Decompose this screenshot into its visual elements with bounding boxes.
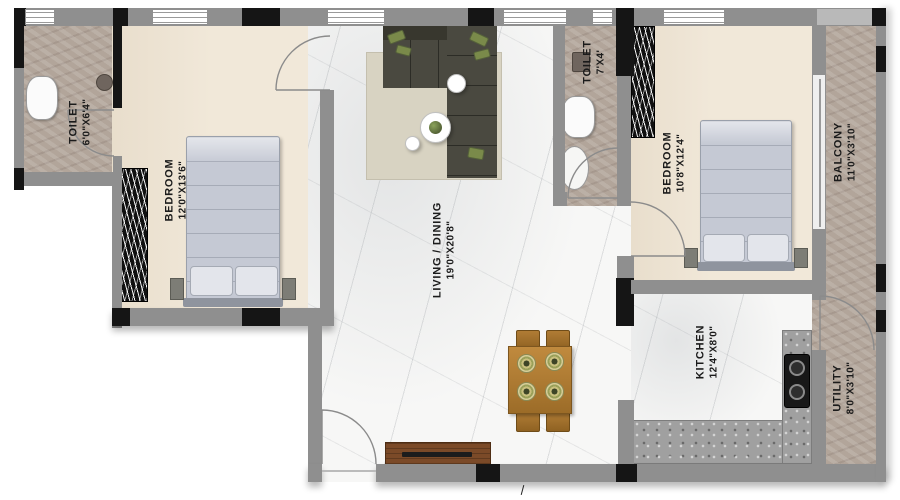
bedside-table	[684, 248, 698, 268]
wall-toilet-2-bedroom-2	[617, 76, 631, 206]
column	[113, 8, 128, 26]
room-label-living-dining: LIVING / DINING 19'0"X20'8"	[430, 202, 457, 298]
wardrobe-bedroom-2	[631, 26, 655, 138]
column	[112, 308, 130, 326]
pillow	[190, 266, 233, 296]
wall-toilet-1-bottom	[14, 172, 118, 186]
sofa-side-table	[447, 74, 466, 93]
column	[14, 13, 24, 68]
room-label-toilet-2: TOILET 7'X4'	[580, 40, 607, 84]
room-name: UTILITY	[830, 362, 844, 415]
room-label-bedroom-2: BEDROOM 10'8"X12'4"	[660, 131, 687, 194]
bedside-table	[170, 278, 184, 300]
window	[663, 9, 725, 25]
wall-bedroom-1-living	[320, 90, 334, 308]
dining-chair	[516, 412, 540, 432]
pillow	[747, 234, 789, 262]
pillow	[703, 234, 745, 262]
room-name: BEDROOM	[162, 158, 176, 221]
balcony-sliding-door	[812, 74, 826, 230]
room-dimensions: 7'X4'	[595, 40, 608, 84]
column	[876, 46, 886, 72]
column	[876, 264, 886, 292]
room-name: TOILET	[580, 40, 594, 84]
hob-burner	[789, 360, 805, 376]
wall-living-left	[308, 308, 322, 482]
wall-top	[14, 8, 886, 26]
column	[242, 308, 280, 326]
column	[872, 8, 886, 26]
dining-chair	[546, 412, 570, 432]
column	[14, 168, 24, 190]
washbasin-toilet-2	[562, 96, 595, 138]
sliding-door-track	[819, 79, 821, 227]
room-dimensions: 10'8"X12'4"	[675, 131, 688, 194]
tv-screen	[402, 452, 472, 457]
dining-plate	[545, 352, 564, 371]
window	[25, 9, 55, 25]
room-name: KITCHEN	[693, 325, 707, 380]
room-label-bedroom-1: BEDROOM 12'0"X13'6"	[162, 158, 189, 221]
column	[242, 8, 280, 26]
wall-bedroom-1-bottom	[112, 308, 334, 326]
wall-right	[876, 8, 886, 482]
washbasin-toilet-1	[26, 76, 58, 120]
wall-balcony-lower	[812, 230, 826, 294]
room-label-balcony: BALCONY 11'0"X3'10"	[831, 122, 858, 182]
floor-plan: TOILET 6'0"X6'4" BEDROOM 12'0"X13'6" LIV…	[0, 0, 900, 500]
dining-plate	[517, 382, 536, 401]
room-dimensions: 19'0"X20'8"	[445, 202, 458, 298]
pillow	[235, 266, 278, 296]
window	[152, 9, 208, 25]
column	[476, 464, 500, 482]
wall-toilet-2-left	[553, 8, 565, 206]
room-dimensions: 12'4"X8'0"	[708, 325, 721, 380]
room-name: BEDROOM	[660, 131, 674, 194]
headboard-bedroom-1	[183, 298, 283, 307]
room-dimensions: 6'0"X6'4"	[81, 99, 94, 146]
wall-living-kitchen	[618, 400, 634, 466]
room-name: LIVING / DINING	[430, 202, 444, 298]
room-label-utility: UTILITY 8'0"X3'10"	[830, 362, 857, 415]
room-dimensions: 11'0"X3'10"	[846, 122, 859, 182]
bedside-table	[794, 248, 808, 268]
hob-burner	[789, 384, 805, 400]
room-label-kitchen: KITCHEN 12'4"X8'0"	[693, 325, 720, 380]
room-dimensions: 8'0"X3'10"	[845, 362, 858, 415]
wall-balcony-upper	[812, 26, 826, 74]
column	[616, 464, 637, 482]
wall-toilet-1-right-column	[113, 26, 122, 108]
headboard-bedroom-2	[697, 262, 795, 271]
column	[468, 8, 494, 26]
balcony-railing	[817, 9, 872, 25]
column-toilet-2-right	[616, 8, 634, 76]
wall-toilet-2-bottom-stub	[553, 192, 567, 206]
small-table	[405, 136, 420, 151]
coffee-table-plant	[429, 121, 442, 134]
bottom-tick-mark	[521, 485, 525, 495]
window	[327, 9, 385, 25]
room-name: TOILET	[66, 99, 80, 146]
room-dimensions: 12'0"X13'6"	[177, 158, 190, 221]
room-name: BALCONY	[831, 122, 845, 182]
wall-utility-stub	[812, 294, 826, 300]
wall-bottom-left-piece	[308, 464, 322, 482]
wall-kitchen-top	[631, 280, 812, 294]
bedside-table	[282, 278, 296, 300]
room-label-toilet-1: TOILET 6'0"X6'4"	[66, 99, 93, 146]
window	[503, 9, 567, 25]
column	[876, 310, 886, 332]
wall-kitchen-utility	[812, 350, 826, 466]
wall-bedroom-1-left	[112, 172, 122, 328]
window	[592, 9, 613, 25]
wc-toilet-1	[96, 74, 113, 91]
wardrobe-bedroom-1	[118, 168, 148, 302]
entrance-threshold	[322, 470, 376, 472]
wall-toilet-1-right-stub	[113, 156, 122, 174]
dining-plate	[545, 382, 564, 401]
dining-plate	[517, 354, 536, 373]
